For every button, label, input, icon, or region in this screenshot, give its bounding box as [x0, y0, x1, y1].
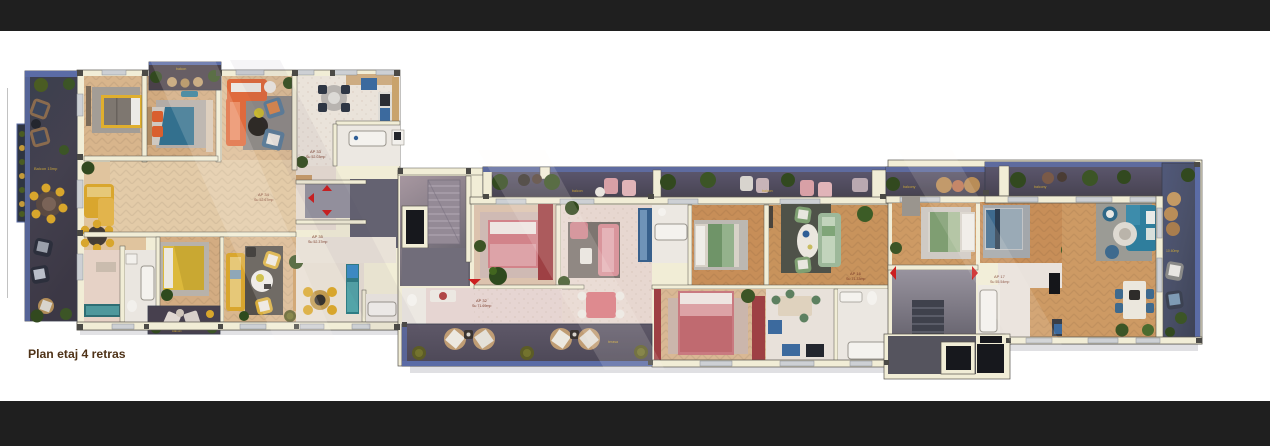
svg-text:Balcon 15mp: Balcon 15mp [34, 166, 58, 171]
svg-text:balcony: balcony [1034, 185, 1047, 189]
svg-text:balcon: balcon [762, 189, 773, 193]
svg-text:AP 32: AP 32 [476, 298, 488, 303]
svg-text:Su 71.33mp: Su 71.33mp [846, 277, 865, 281]
svg-text:AP 16: AP 16 [850, 271, 862, 276]
svg-text:balcon: balcon [572, 189, 583, 193]
svg-text:balcony: balcony [903, 185, 916, 189]
svg-text:Su 71.69mp: Su 71.69mp [472, 304, 491, 308]
svg-text:Plan etaj 4 retras: Plan etaj 4 retras [28, 347, 126, 361]
svg-text:10.60mp: 10.60mp [1166, 249, 1179, 253]
